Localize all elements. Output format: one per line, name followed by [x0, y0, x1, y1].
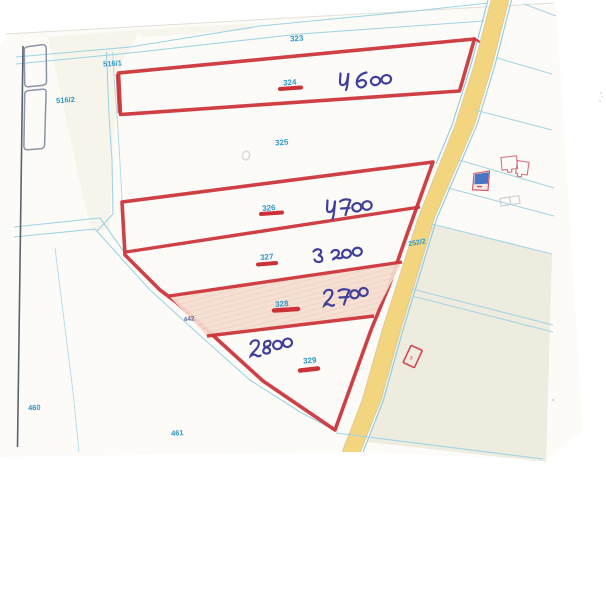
svg-text:461: 461: [171, 428, 184, 438]
svg-text:323: 323: [290, 34, 304, 44]
svg-text:460: 460: [28, 403, 41, 413]
svg-text:327: 327: [260, 252, 275, 262]
svg-text:516/2: 516/2: [56, 95, 75, 105]
svg-text:516/1: 516/1: [103, 58, 122, 68]
svg-text:329: 329: [303, 355, 318, 365]
svg-text:442: 442: [183, 315, 195, 323]
svg-text:325: 325: [275, 138, 289, 148]
